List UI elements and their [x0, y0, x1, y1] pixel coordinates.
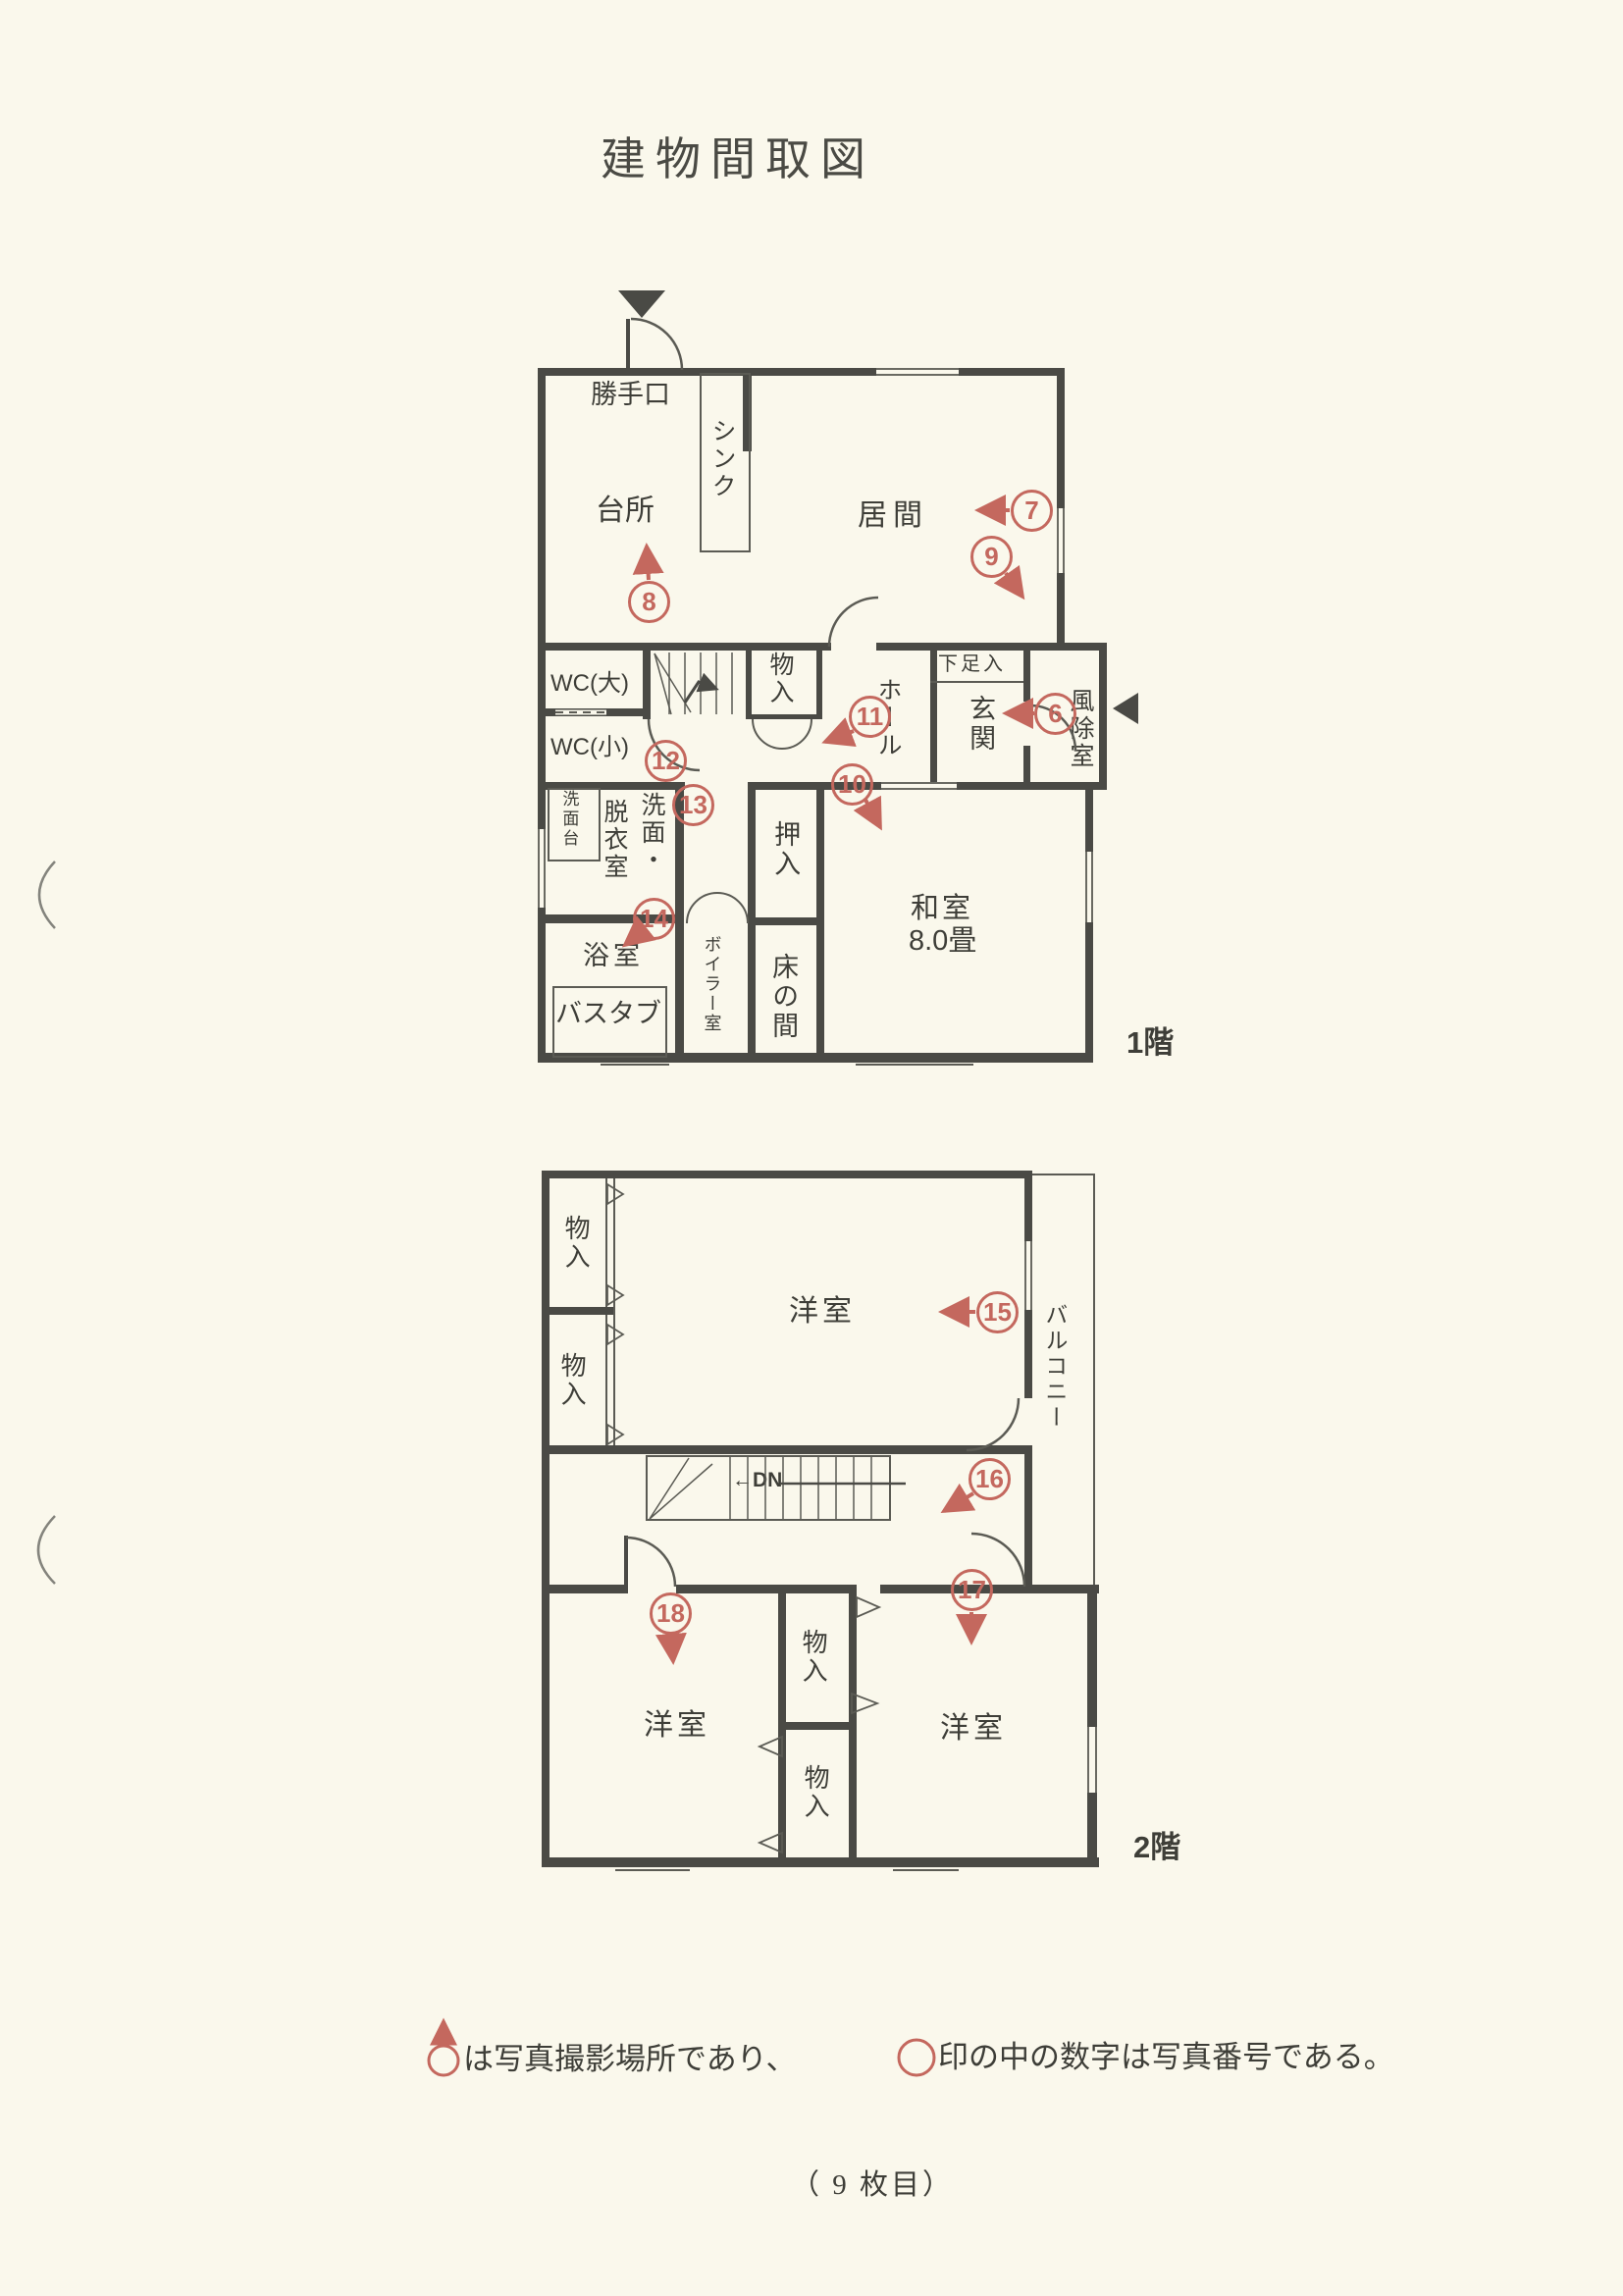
photo-marker-9: 9 [970, 536, 1013, 578]
photo-marker-13: 13 [672, 784, 714, 826]
photo-marker-14: 14 [633, 898, 675, 940]
photo-marker-11: 11 [849, 696, 891, 738]
binding-mark [38, 1516, 55, 1584]
photo-marker-15: 15 [976, 1291, 1019, 1333]
stairs-floor2 [650, 1455, 871, 1521]
binding-mark [39, 861, 55, 928]
photo-marker-18: 18 [650, 1592, 692, 1635]
photo-marker-8: 8 [628, 581, 670, 623]
plan-graphics [0, 0, 1623, 2296]
stairs-floor1 [654, 652, 732, 714]
door-arc-boiler [687, 893, 717, 923]
door-arc-balcony [967, 1398, 1019, 1450]
sliding-door-marks-floor2 [607, 1184, 879, 1852]
photo-marker-7: 7 [1011, 490, 1053, 532]
photo-number-icon [899, 2040, 934, 2075]
door-arc-storage [782, 719, 811, 749]
scanned-floorplan-page: { "colors":{"paper":"#faf8ec","ink":"#3e… [0, 0, 1623, 2296]
front-entry-triangle [1113, 693, 1138, 724]
photo-marker-10: 10 [831, 763, 873, 806]
photo-location-icon [429, 2046, 458, 2075]
photo-marker-12: 12 [645, 740, 687, 782]
back-entry-triangle [618, 290, 665, 318]
photo-marker-17: 17 [951, 1569, 993, 1611]
door-arc-boiler [717, 893, 748, 923]
door-arc-katteguchi [631, 319, 682, 370]
door-arc-storage [753, 719, 782, 749]
door-arc-living [829, 598, 878, 647]
door-arc-room-sw [626, 1538, 675, 1587]
photo-marker-6: 6 [1034, 693, 1076, 735]
photo-marker-16: 16 [969, 1458, 1011, 1500]
